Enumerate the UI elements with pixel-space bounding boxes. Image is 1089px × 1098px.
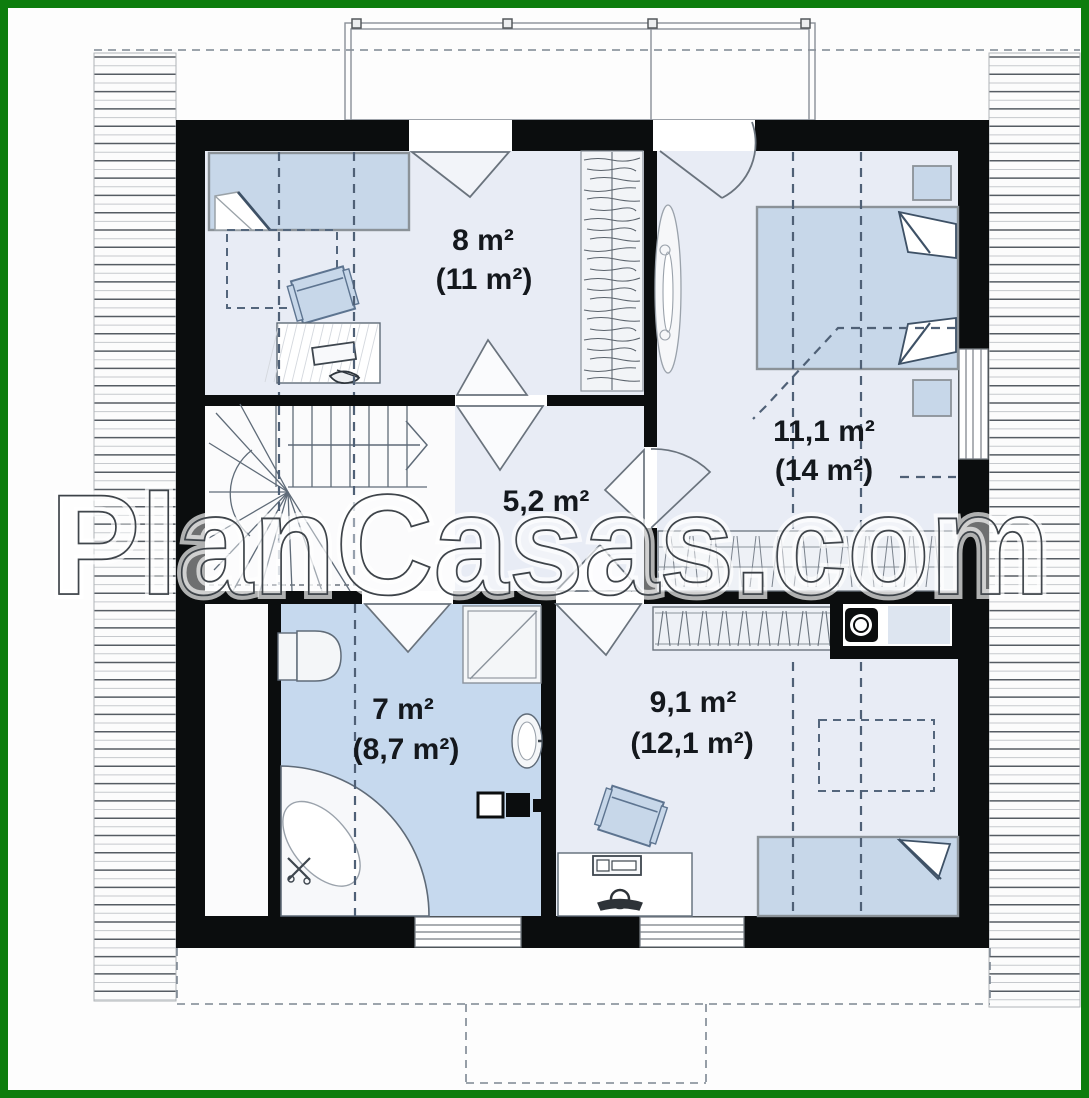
svg-text:5,2 m²: 5,2 m² bbox=[503, 485, 590, 518]
svg-text:(11 m²): (11 m²) bbox=[436, 263, 533, 296]
svg-text:(8,7 m²): (8,7 m²) bbox=[353, 733, 460, 766]
svg-text:7 m²: 7 m² bbox=[372, 693, 434, 726]
svg-text:8 m²: 8 m² bbox=[452, 224, 514, 257]
svg-text:(12,1 m²): (12,1 m²) bbox=[630, 727, 753, 760]
svg-text:(14 m²): (14 m²) bbox=[775, 454, 873, 487]
svg-text:9,1 m²: 9,1 m² bbox=[650, 686, 737, 719]
svg-text:11,1 m²: 11,1 m² bbox=[773, 415, 875, 448]
